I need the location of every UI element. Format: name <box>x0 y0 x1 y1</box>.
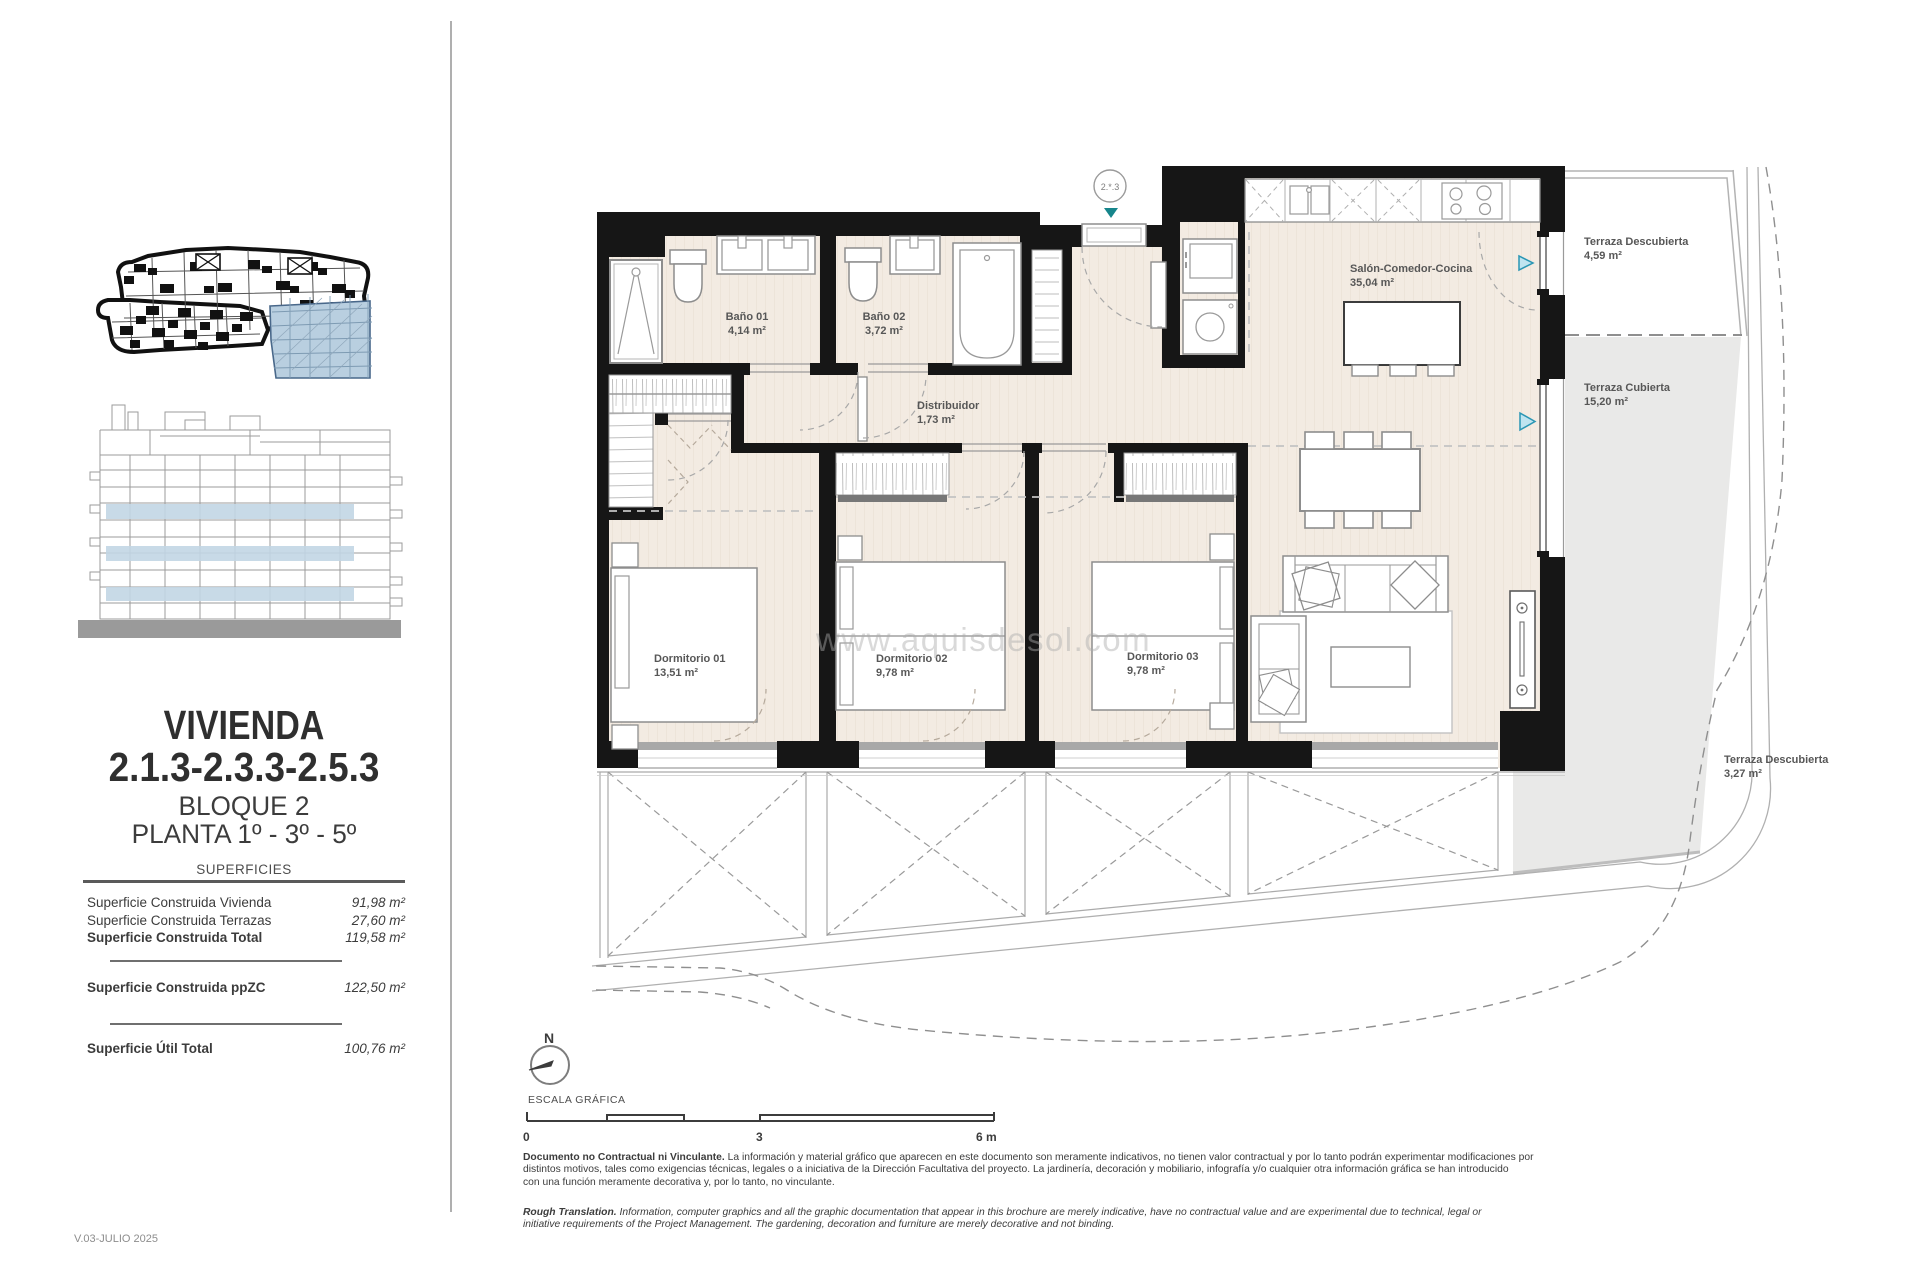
svg-text:4,14 m²: 4,14 m² <box>728 325 766 337</box>
svg-text:Baño 01: Baño 01 <box>726 311 769 323</box>
svg-text:6 m: 6 m <box>976 1130 997 1144</box>
svg-text:Terraza Descubierta: Terraza Descubierta <box>1584 236 1689 248</box>
svg-text:Dormitorio 01: Dormitorio 01 <box>654 653 726 665</box>
svg-text:Salón-Comedor-Cocina: Salón-Comedor-Cocina <box>1350 263 1473 275</box>
svg-text:N: N <box>544 1030 554 1046</box>
svg-text:Terraza Descubierta: Terraza Descubierta <box>1724 754 1829 766</box>
svg-text:2.*.3: 2.*.3 <box>1101 182 1120 192</box>
svg-text:0: 0 <box>523 1130 530 1144</box>
svg-text:Baño 02: Baño 02 <box>863 311 906 323</box>
svg-text:3,72 m²: 3,72 m² <box>865 325 903 337</box>
svg-text:ESCALA GRÁFICA: ESCALA GRÁFICA <box>528 1093 625 1106</box>
svg-text:Terraza Cubierta: Terraza Cubierta <box>1584 382 1671 394</box>
svg-text:www.aquisdesol.com: www.aquisdesol.com <box>815 621 1151 658</box>
svg-text:13,51 m²: 13,51 m² <box>654 667 698 679</box>
svg-text:Distribuidor: Distribuidor <box>917 400 980 412</box>
svg-text:1,73 m²: 1,73 m² <box>917 414 955 426</box>
svg-text:9,78 m²: 9,78 m² <box>1127 665 1165 677</box>
svg-text:3,27 m²: 3,27 m² <box>1724 768 1762 780</box>
svg-text:3: 3 <box>756 1130 763 1144</box>
svg-text:4,59 m²: 4,59 m² <box>1584 250 1622 262</box>
svg-text:35,04 m²: 35,04 m² <box>1350 277 1394 289</box>
svg-text:15,20 m²: 15,20 m² <box>1584 396 1628 408</box>
svg-text:9,78 m²: 9,78 m² <box>876 667 914 679</box>
